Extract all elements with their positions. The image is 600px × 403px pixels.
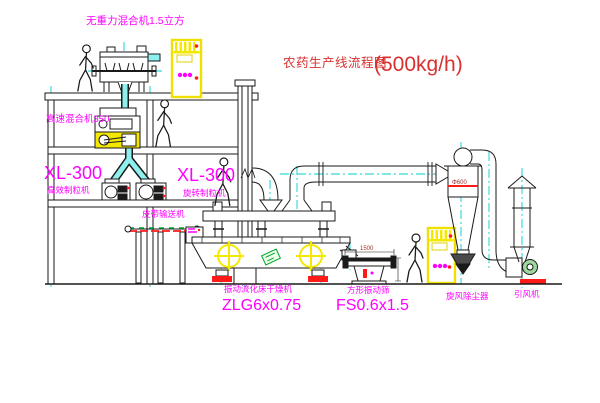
person-top-floor [78,45,93,91]
label-granulator-left-name: 高效制粒机 [47,185,90,195]
control-cabinet-2 [428,228,455,283]
person-second-floor [156,100,172,147]
label-belt-conveyor: 皮带输送机 [142,209,185,219]
cad-flow-diagram: 农药生产线流程图 (500kg/h) 无重力混合机1.5立方 高速混合机350 … [0,0,600,403]
elevator-discharge-elbow [252,168,282,211]
label-granulator-right-model: XL-300 [177,165,235,185]
label-dryer-model: ZLG6x0.75 [222,297,301,314]
label-screen-name: 方形振动筛 [347,285,390,295]
label-screen-model: FS0.6x1.5 [336,297,409,314]
dim-screen-width: 1500 [360,246,374,252]
label-dryer-name: 振动流化床干燥机 [224,284,293,294]
induced-draft-fan [506,258,546,284]
control-cabinet-1 [172,40,201,97]
fluid-bed-dryer [186,202,358,282]
label-granulator-right-name: 旋转制粒机 [183,188,226,198]
person-ground [407,234,423,282]
label-gravity-mixer: 无重力混合机1.5立方 [86,14,185,27]
label-cyclone: 旋风除尘器 [446,291,489,301]
label-fan: 引风机 [514,289,540,299]
dim-cyclone-diameter: Φ600 [452,180,467,186]
diagram-svg: 农药生产线流程图 (500kg/h) 无重力混合机1.5立方 高速混合机350 … [0,0,600,403]
label-granulator-left-model: XL-300 [44,163,102,183]
vibrating-screen [342,249,401,284]
granulator-right [136,179,166,200]
exhaust-duct [282,162,453,211]
label-high-speed-mixer: 高速混合机350 [46,113,109,125]
title-capacity: (500kg/h) [374,53,463,76]
title-text: 农药生产线流程图 [283,55,387,70]
granulator-left [102,179,130,200]
